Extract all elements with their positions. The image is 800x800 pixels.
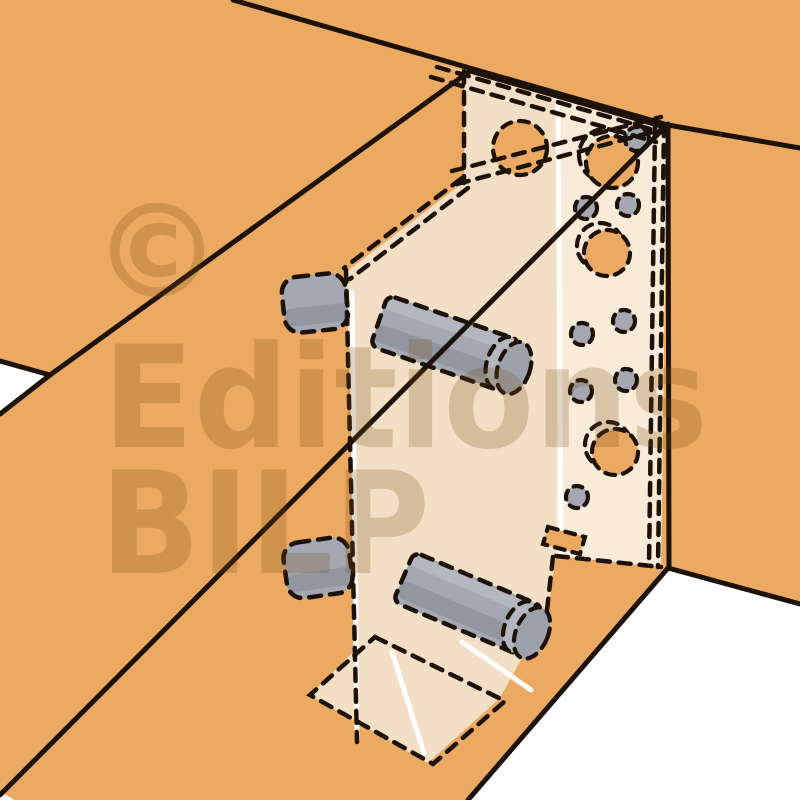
joint-illustration: © Editions BILP (0, 0, 800, 800)
fastener (617, 194, 639, 216)
hole-mid (584, 230, 630, 276)
watermark-copyright: © (92, 176, 222, 328)
joint-diagram-canvas: © Editions BILP (0, 0, 800, 800)
fastener (566, 486, 588, 508)
watermark-bilp: BILP (100, 442, 430, 607)
